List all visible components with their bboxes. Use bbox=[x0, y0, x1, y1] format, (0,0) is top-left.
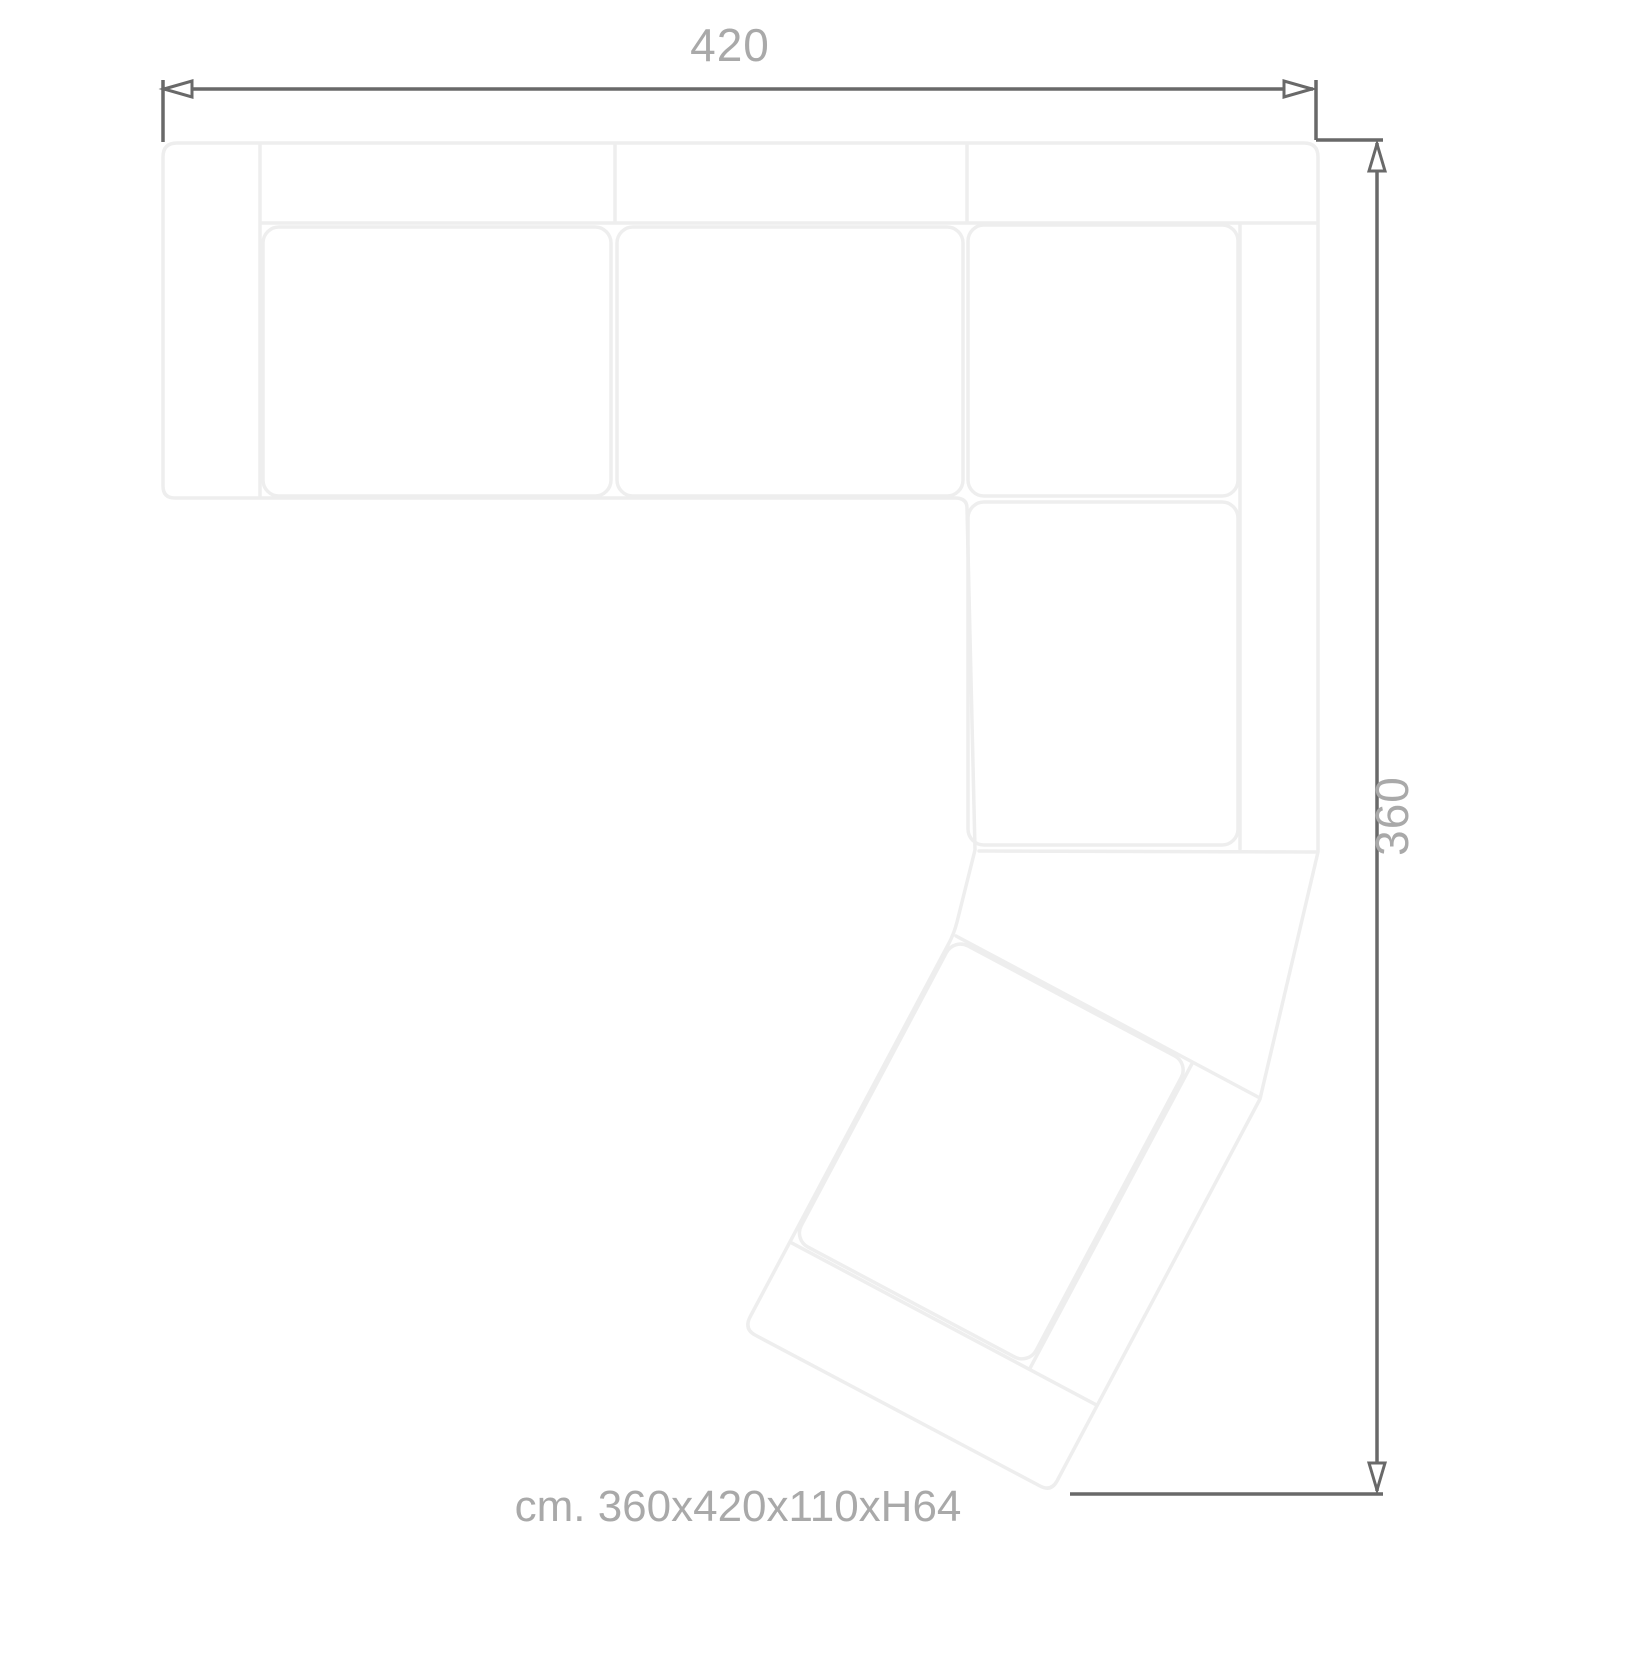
size-caption: cm. 360x420x110xH64 bbox=[515, 1482, 962, 1531]
arrowhead-down-icon bbox=[1369, 1463, 1385, 1490]
arrowhead-right-icon bbox=[1284, 81, 1312, 97]
sofa-body-outline bbox=[163, 143, 1318, 1488]
arrowhead-left-icon bbox=[164, 81, 192, 97]
angled-seat-cushion bbox=[794, 938, 1189, 1364]
sofa-plan bbox=[163, 143, 1318, 1488]
sofa-drawing-page: 420 360 cm. 360x420x110xH64 bbox=[0, 0, 1634, 1659]
angled-backrest-divider bbox=[1030, 1063, 1192, 1368]
angled-arm-group bbox=[792, 937, 1259, 1405]
wedge-top-line bbox=[979, 851, 1316, 852]
sofa-technical-drawing: 420 360 cm. 360x420x110xH64 bbox=[0, 0, 1634, 1659]
angled-arm-top-line bbox=[956, 936, 1258, 1097]
seat-cushion-2 bbox=[617, 227, 963, 496]
dimension-annotations bbox=[163, 80, 1385, 1494]
right-seat-cushion bbox=[968, 502, 1238, 845]
top-dimension-label: 420 bbox=[690, 19, 770, 71]
right-dimension-label: 360 bbox=[1366, 776, 1418, 856]
seat-cushion-1 bbox=[263, 227, 611, 496]
corner-seat-cushion bbox=[968, 225, 1238, 496]
arrowhead-up-icon bbox=[1369, 144, 1385, 171]
